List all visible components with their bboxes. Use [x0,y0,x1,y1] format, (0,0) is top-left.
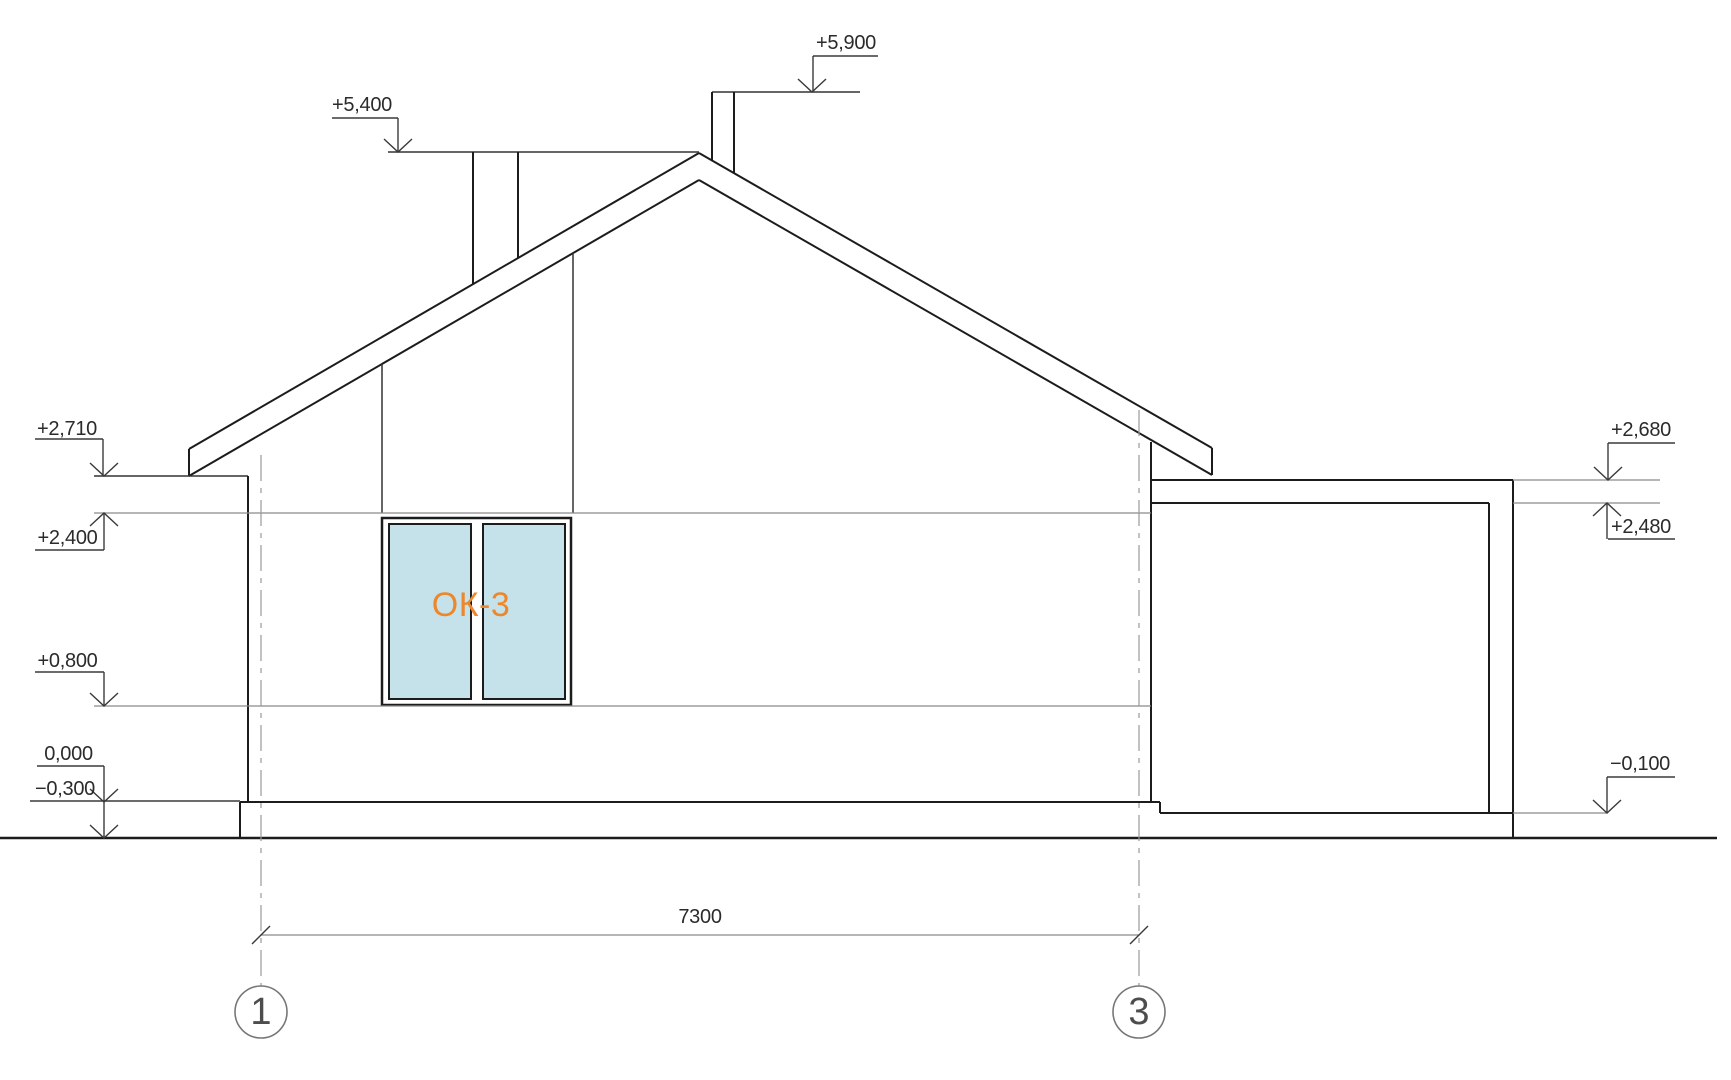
main-house-walls [240,253,1160,838]
chimney-left [388,152,699,284]
window-tag-ok3: ОК-3 [411,588,531,622]
elevation-label-2400: +2,400 [30,528,105,548]
dimension-value-7300: 7300 [655,907,745,927]
elevation-label-m0100: −0,100 [1604,754,1676,774]
roof-right-inner-line [699,180,1212,475]
elevation-label-0000: 0,000 [32,744,105,764]
level-lines [30,480,1660,813]
elevation-label-5400: +5,400 [325,95,399,115]
elevation-label-2480: +2,480 [1606,517,1676,537]
elevation-label-m0300: −0,300 [25,779,105,799]
arrow-down-2710 [90,463,118,476]
elevation-drawing-canvas: +5,400 +5,900 +2,710 +2,400 +0,800 0,000… [0,0,1731,1080]
roof-right-outer-line [699,153,1212,448]
axis-bubble-3-label: 3 [1113,986,1165,1038]
elevation-label-5900: +5,900 [810,33,882,53]
gable-roof [94,153,1212,476]
elevation-mark-leaders [35,56,1675,838]
elevation-label-2680: +2,680 [1606,420,1676,440]
roof-left-inner-line [189,180,699,476]
axis-and-dimension [235,410,1165,1038]
drawing-linework [0,0,1731,1080]
roof-left-outer-line [189,153,699,449]
chimney-right [712,92,860,173]
elevation-label-0800: +0,800 [30,651,105,671]
elevation-arrows [90,79,1622,838]
axis-bubble-1-label: 1 [235,986,287,1038]
arrow-down-5900 [798,79,826,92]
elevation-label-2710: +2,710 [30,419,104,439]
annex-structure [1152,480,1513,838]
